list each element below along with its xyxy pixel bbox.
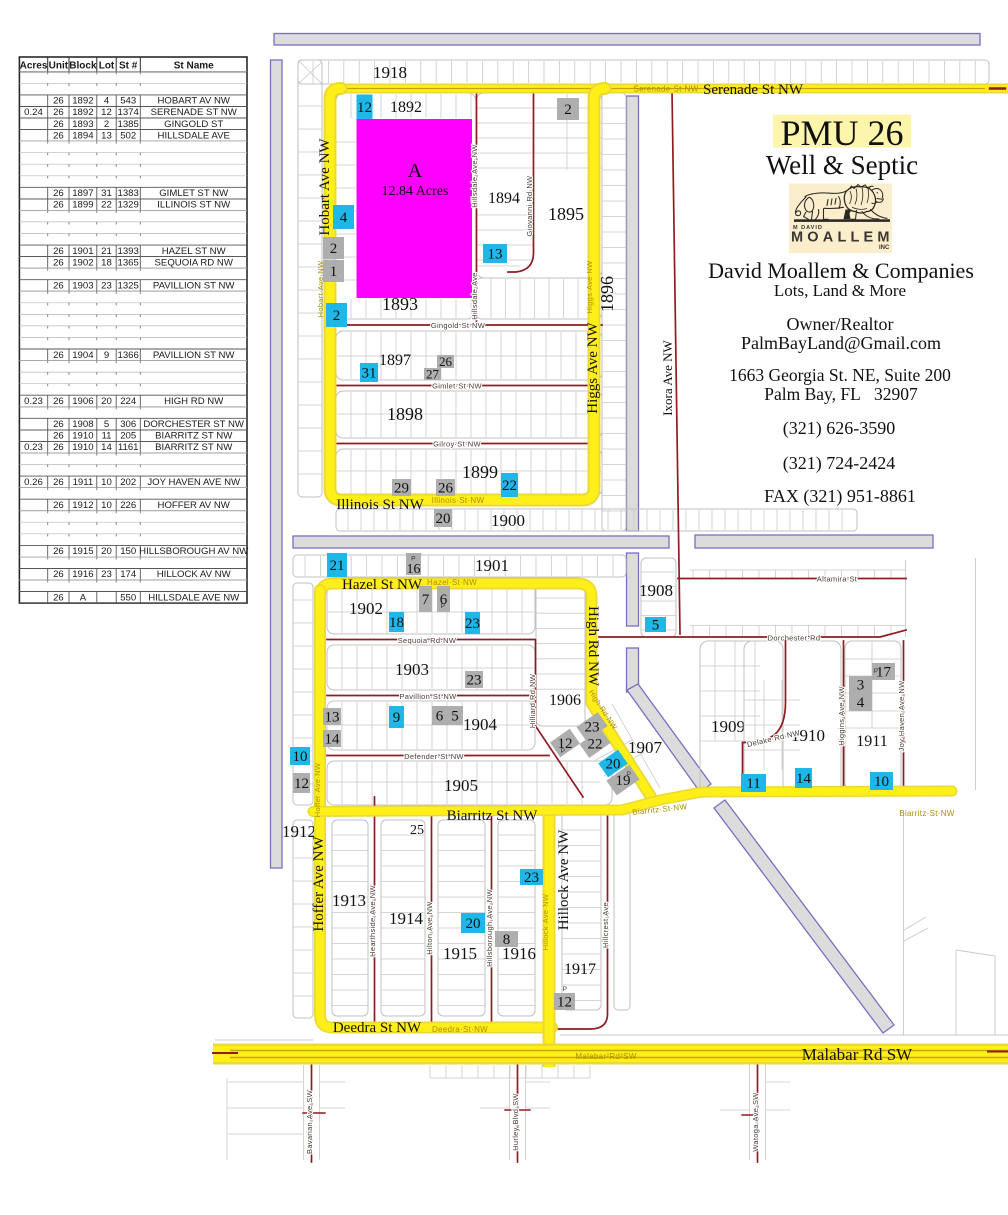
svg-text:P: P bbox=[561, 748, 566, 755]
svg-text:9: 9 bbox=[393, 710, 401, 726]
svg-text:1893: 1893 bbox=[72, 119, 93, 130]
svg-text:550: 550 bbox=[120, 592, 136, 603]
svg-text:1903: 1903 bbox=[395, 660, 429, 679]
svg-text:Hillsborough·Ave·NW: Hillsborough·Ave·NW bbox=[485, 889, 494, 967]
svg-text:205: 205 bbox=[120, 431, 136, 442]
svg-text:Altamira·St: Altamira·St bbox=[817, 575, 858, 584]
svg-text:Hillcrest·Ave: Hillcrest·Ave bbox=[601, 902, 610, 948]
svg-text:502: 502 bbox=[120, 130, 136, 141]
svg-text:Sequoia·Rd·NW: Sequoia·Rd·NW bbox=[398, 636, 457, 645]
svg-text:1: 1 bbox=[330, 264, 338, 280]
svg-text:SEQUOIA RD NW: SEQUOIA RD NW bbox=[155, 257, 234, 268]
svg-text:Biarritz St NW: Biarritz St NW bbox=[447, 808, 539, 824]
svg-text:Gingold·St·NW: Gingold·St·NW bbox=[431, 321, 486, 330]
svg-text:1895: 1895 bbox=[548, 204, 584, 224]
svg-text:14: 14 bbox=[325, 732, 341, 748]
svg-text:1899: 1899 bbox=[72, 200, 93, 211]
svg-text:HILLSDALE AVE NW: HILLSDALE AVE NW bbox=[148, 592, 240, 603]
svg-text:14: 14 bbox=[101, 442, 112, 453]
svg-text:10: 10 bbox=[101, 477, 112, 488]
svg-text:HILLOCK AV NW: HILLOCK AV NW bbox=[157, 569, 232, 580]
svg-text:1897: 1897 bbox=[72, 188, 93, 199]
svg-text:BIARRITZ ST NW: BIARRITZ ST NW bbox=[155, 431, 233, 442]
svg-text:SERENADE ST NW: SERENADE ST NW bbox=[151, 107, 238, 118]
svg-text:1385: 1385 bbox=[118, 119, 139, 130]
svg-text:26: 26 bbox=[53, 500, 64, 511]
svg-text:Acres: Acres bbox=[20, 60, 48, 71]
svg-text:PalmBayLand@Gmail.com: PalmBayLand@Gmail.com bbox=[741, 333, 941, 353]
svg-text:Deedra St NW: Deedra St NW bbox=[333, 1020, 422, 1036]
svg-text:27: 27 bbox=[426, 366, 440, 381]
svg-text:1901: 1901 bbox=[72, 246, 93, 257]
svg-text:Hobart Ave NW: Hobart Ave NW bbox=[317, 138, 333, 236]
svg-text:1912: 1912 bbox=[72, 500, 93, 511]
svg-text:5: 5 bbox=[652, 618, 660, 634]
svg-text:(321) 724-2424: (321) 724-2424 bbox=[783, 453, 895, 474]
svg-text:1898: 1898 bbox=[387, 404, 423, 424]
svg-text:26: 26 bbox=[53, 96, 64, 107]
svg-text:25: 25 bbox=[410, 823, 424, 838]
svg-text:Serenade·St·NW: Serenade·St·NW bbox=[633, 85, 698, 94]
svg-text:3: 3 bbox=[857, 678, 865, 694]
svg-text:A: A bbox=[408, 160, 423, 182]
svg-text:150: 150 bbox=[120, 546, 136, 557]
svg-text:Block: Block bbox=[69, 60, 97, 71]
svg-text:11: 11 bbox=[102, 431, 112, 442]
svg-text:23: 23 bbox=[101, 280, 112, 291]
svg-text:St #: St # bbox=[119, 60, 138, 71]
svg-text:1915: 1915 bbox=[72, 546, 93, 557]
svg-text:Ixora Ave NW: Ixora Ave NW bbox=[660, 339, 675, 415]
svg-text:26: 26 bbox=[53, 546, 64, 557]
svg-text:1906: 1906 bbox=[549, 692, 581, 709]
svg-text:2: 2 bbox=[104, 119, 109, 130]
svg-text:2: 2 bbox=[330, 241, 338, 257]
svg-text:Owner/Realtor: Owner/Realtor bbox=[787, 314, 894, 334]
svg-text:1325: 1325 bbox=[118, 280, 139, 291]
svg-text:HOFFER AV NW: HOFFER AV NW bbox=[158, 500, 231, 511]
svg-text:20: 20 bbox=[466, 916, 481, 932]
svg-text:1910: 1910 bbox=[72, 442, 93, 453]
svg-text:(321) 626-3590: (321) 626-3590 bbox=[783, 418, 895, 439]
svg-text:Illinois·St·NW: Illinois·St·NW bbox=[432, 496, 485, 505]
svg-text:HOBART AV NW: HOBART AV NW bbox=[157, 96, 230, 107]
svg-text:1892: 1892 bbox=[390, 99, 422, 116]
svg-text:22: 22 bbox=[101, 200, 112, 211]
svg-text:1894: 1894 bbox=[72, 130, 94, 141]
svg-text:26: 26 bbox=[53, 431, 64, 442]
svg-text:22: 22 bbox=[502, 478, 517, 494]
svg-text:1909: 1909 bbox=[711, 717, 745, 736]
svg-text:1908: 1908 bbox=[639, 581, 673, 600]
svg-text:13: 13 bbox=[101, 130, 112, 141]
svg-text:1901: 1901 bbox=[475, 556, 509, 575]
svg-text:26: 26 bbox=[53, 257, 64, 268]
svg-text:18: 18 bbox=[389, 615, 404, 631]
svg-text:1917: 1917 bbox=[564, 961, 596, 978]
svg-text:1899: 1899 bbox=[462, 462, 498, 482]
svg-text:1902: 1902 bbox=[349, 599, 383, 618]
svg-text:16: 16 bbox=[407, 562, 421, 577]
svg-text:PAVILLION ST NW: PAVILLION ST NW bbox=[153, 280, 236, 291]
svg-text:ILLINOIS ST NW: ILLINOIS ST NW bbox=[157, 200, 231, 211]
svg-text:23: 23 bbox=[465, 616, 480, 632]
svg-text:Dorchester·Rd: Dorchester·Rd bbox=[768, 634, 821, 643]
svg-text:4: 4 bbox=[857, 695, 865, 711]
svg-text:14: 14 bbox=[796, 771, 812, 787]
svg-text:PAVILLION ST NW: PAVILLION ST NW bbox=[153, 350, 236, 361]
svg-text:26: 26 bbox=[53, 200, 64, 211]
svg-text:1900: 1900 bbox=[491, 511, 525, 530]
svg-text:18: 18 bbox=[101, 257, 112, 268]
svg-text:Serenade St NW: Serenade St NW bbox=[703, 82, 804, 98]
svg-text:202: 202 bbox=[120, 477, 136, 488]
svg-text:Hilton·Ave·NW: Hilton·Ave·NW bbox=[425, 901, 434, 955]
svg-text:Malabar²Rd²SW: Malabar²Rd²SW bbox=[575, 1052, 636, 1061]
svg-text:1329: 1329 bbox=[118, 200, 139, 211]
svg-text:174: 174 bbox=[120, 569, 137, 580]
svg-text:Watoga·Ave·SW: Watoga·Ave·SW bbox=[751, 1092, 760, 1152]
svg-text:1916: 1916 bbox=[72, 569, 93, 580]
svg-text:Hilliard·Rd·NW: Hilliard·Rd·NW bbox=[528, 673, 537, 728]
svg-text:Hillock·Ave·NW: Hillock·Ave·NW bbox=[541, 893, 550, 950]
svg-text:Bavarian·Ave·SW: Bavarian·Ave·SW bbox=[305, 1089, 314, 1154]
svg-text:DORCHESTER ST NW: DORCHESTER ST NW bbox=[143, 419, 245, 430]
svg-text:0.23: 0.23 bbox=[24, 442, 43, 453]
svg-text:Hoffer·Ave·NW: Hoffer·Ave·NW bbox=[313, 762, 322, 817]
svg-text:BIARRITZ ST NW: BIARRITZ ST NW bbox=[155, 442, 233, 453]
svg-text:1904: 1904 bbox=[463, 715, 498, 734]
svg-text:26: 26 bbox=[53, 246, 64, 257]
svg-text:Well & Septic: Well & Septic bbox=[766, 150, 918, 180]
svg-text:1902: 1902 bbox=[72, 257, 93, 268]
svg-text:1894: 1894 bbox=[488, 190, 520, 207]
svg-text:5: 5 bbox=[451, 709, 459, 725]
svg-text:Higgins·Ave·NW: Higgins·Ave·NW bbox=[837, 686, 846, 746]
svg-text:David Moallem & Companies: David Moallem & Companies bbox=[708, 258, 974, 283]
svg-text:Malabar Rd SW: Malabar Rd SW bbox=[802, 1045, 913, 1064]
svg-text:26: 26 bbox=[53, 419, 64, 430]
svg-text:26: 26 bbox=[53, 107, 64, 118]
svg-text:1383: 1383 bbox=[118, 188, 139, 199]
svg-text:INC: INC bbox=[879, 245, 890, 251]
svg-text:Lot: Lot bbox=[99, 60, 115, 71]
svg-text:1911: 1911 bbox=[856, 733, 887, 750]
svg-text:Lots, Land & More: Lots, Land & More bbox=[774, 281, 906, 300]
svg-text:P: P bbox=[441, 603, 446, 610]
svg-text:Hurley·Blvd·SW: Hurley·Blvd·SW bbox=[511, 1093, 520, 1151]
svg-text:13: 13 bbox=[325, 710, 340, 726]
svg-text:Hazel St NW: Hazel St NW bbox=[342, 577, 423, 593]
svg-text:2: 2 bbox=[333, 308, 341, 324]
svg-text:23: 23 bbox=[467, 673, 482, 689]
svg-text:Higgs Ave NW: Higgs Ave NW bbox=[585, 321, 601, 413]
svg-text:Hillsdale·Ave: Hillsdale·Ave bbox=[470, 272, 479, 320]
svg-text:10: 10 bbox=[101, 500, 112, 511]
svg-text:1161: 1161 bbox=[118, 442, 139, 453]
svg-text:1365: 1365 bbox=[118, 257, 139, 268]
svg-text:1914: 1914 bbox=[389, 909, 424, 928]
svg-text:Hillock Ave NW: Hillock Ave NW bbox=[556, 829, 572, 930]
svg-text:PMU 26: PMU 26 bbox=[780, 113, 903, 153]
svg-text:1906: 1906 bbox=[72, 396, 93, 407]
svg-text:Illinois St NW: Illinois St NW bbox=[336, 497, 424, 513]
svg-text:P: P bbox=[627, 771, 632, 778]
svg-text:11: 11 bbox=[746, 776, 760, 792]
svg-text:26: 26 bbox=[53, 350, 64, 361]
svg-text:26: 26 bbox=[439, 354, 453, 369]
svg-text:26: 26 bbox=[53, 396, 64, 407]
svg-text:20: 20 bbox=[101, 396, 112, 407]
svg-text:10: 10 bbox=[293, 749, 308, 765]
svg-text:0.26: 0.26 bbox=[24, 477, 43, 488]
svg-text:21: 21 bbox=[330, 558, 345, 574]
svg-text:1374: 1374 bbox=[118, 107, 140, 118]
svg-text:26: 26 bbox=[53, 592, 64, 603]
svg-text:1393: 1393 bbox=[118, 246, 139, 257]
svg-text:23: 23 bbox=[101, 569, 112, 580]
svg-text:1908: 1908 bbox=[72, 419, 93, 430]
svg-text:543: 543 bbox=[120, 96, 136, 107]
svg-text:1918: 1918 bbox=[373, 63, 407, 82]
svg-text:Defender·St·NW: Defender·St·NW bbox=[404, 752, 464, 761]
svg-text:26: 26 bbox=[438, 481, 454, 497]
svg-text:224: 224 bbox=[120, 396, 137, 407]
svg-text:26: 26 bbox=[53, 477, 64, 488]
svg-text:9: 9 bbox=[104, 350, 109, 361]
svg-text:26: 26 bbox=[53, 130, 64, 141]
svg-text:12: 12 bbox=[557, 995, 572, 1011]
svg-text:12: 12 bbox=[294, 776, 309, 792]
svg-text:20: 20 bbox=[606, 757, 621, 773]
svg-text:JOY HAVEN AVE NW: JOY HAVEN AVE NW bbox=[147, 477, 241, 488]
svg-text:Hoffer Ave NW: Hoffer Ave NW bbox=[311, 836, 327, 932]
svg-text:26: 26 bbox=[53, 442, 64, 453]
svg-text:Joy·Haven·Ave·NW: Joy·Haven·Ave·NW bbox=[897, 680, 906, 752]
svg-text:5: 5 bbox=[104, 419, 109, 430]
svg-text:Palm Bay, FL 32907: Palm Bay, FL 32907 bbox=[764, 384, 918, 404]
svg-text:Unit: Unit bbox=[49, 60, 69, 71]
svg-text:1892: 1892 bbox=[72, 96, 93, 107]
svg-text:A: A bbox=[80, 592, 87, 603]
svg-text:1663 Georgia St. NE, Suite 200: 1663 Georgia St. NE, Suite 200 bbox=[729, 365, 951, 385]
svg-text:8: 8 bbox=[503, 932, 511, 948]
svg-text:Giovanni·Rd·NW: Giovanni·Rd·NW bbox=[525, 175, 534, 236]
svg-text:GIMLET ST NW: GIMLET ST NW bbox=[159, 188, 229, 199]
svg-text:Deedra·St·NW: Deedra·St·NW bbox=[432, 1025, 488, 1034]
svg-text:22: 22 bbox=[588, 737, 603, 753]
svg-text:12: 12 bbox=[357, 100, 372, 116]
svg-text:HAZEL ST NW: HAZEL ST NW bbox=[162, 246, 227, 257]
svg-text:1897: 1897 bbox=[379, 352, 411, 369]
svg-text:31: 31 bbox=[101, 188, 112, 199]
svg-text:St Name: St Name bbox=[174, 60, 214, 71]
svg-text:Pavillion·St·NW: Pavillion·St·NW bbox=[399, 692, 457, 701]
svg-text:1911: 1911 bbox=[73, 477, 94, 488]
svg-text:6: 6 bbox=[436, 709, 444, 725]
svg-text:GINGOLD ST: GINGOLD ST bbox=[164, 119, 223, 130]
svg-text:226: 226 bbox=[120, 500, 136, 511]
svg-text:31: 31 bbox=[362, 366, 377, 382]
svg-text:21: 21 bbox=[101, 246, 112, 257]
svg-text:1892: 1892 bbox=[72, 107, 93, 118]
svg-text:1366: 1366 bbox=[118, 350, 139, 361]
svg-text:1913: 1913 bbox=[332, 891, 366, 910]
svg-text:306: 306 bbox=[120, 419, 136, 430]
svg-text:26: 26 bbox=[53, 280, 64, 291]
svg-text:20: 20 bbox=[101, 546, 112, 557]
svg-text:26: 26 bbox=[53, 569, 64, 580]
svg-text:4: 4 bbox=[104, 96, 110, 107]
svg-text:7: 7 bbox=[422, 592, 430, 608]
svg-text:4: 4 bbox=[340, 210, 348, 226]
svg-text:12: 12 bbox=[101, 107, 112, 118]
svg-text:P: P bbox=[563, 986, 568, 993]
svg-text:1907: 1907 bbox=[628, 738, 663, 757]
svg-text:Hillsdale·Ave·NW: Hillsdale·Ave·NW bbox=[470, 144, 479, 208]
svg-text:23: 23 bbox=[524, 870, 539, 886]
svg-text:26: 26 bbox=[53, 119, 64, 130]
svg-text:FAX (321) 951-8861: FAX (321) 951-8861 bbox=[764, 486, 916, 507]
svg-text:1910: 1910 bbox=[72, 431, 93, 442]
svg-text:1905: 1905 bbox=[444, 776, 478, 795]
svg-text:0.23: 0.23 bbox=[24, 396, 43, 407]
svg-text:High Rd NW: High Rd NW bbox=[585, 606, 601, 687]
svg-text:Biarritz·St·NW: Biarritz·St·NW bbox=[899, 809, 954, 818]
svg-text:Hazel·St·NW: Hazel·St·NW bbox=[427, 578, 477, 587]
svg-text:Higgs·Ave·NW: Higgs·Ave·NW bbox=[585, 260, 594, 314]
svg-text:HILLSBOROUGH AV NW: HILLSBOROUGH AV NW bbox=[139, 546, 249, 557]
svg-text:26: 26 bbox=[53, 188, 64, 199]
svg-text:10: 10 bbox=[874, 774, 889, 790]
svg-text:0.24: 0.24 bbox=[24, 107, 43, 118]
svg-text:Gimlet·St·NW: Gimlet·St·NW bbox=[432, 382, 482, 391]
svg-text:1904: 1904 bbox=[72, 350, 94, 361]
svg-text:13: 13 bbox=[488, 247, 503, 263]
svg-text:P: P bbox=[874, 668, 879, 675]
svg-text:29: 29 bbox=[394, 481, 409, 497]
svg-text:1915: 1915 bbox=[443, 944, 477, 963]
svg-text:1903: 1903 bbox=[72, 280, 93, 291]
svg-text:HILLSDALE AVE: HILLSDALE AVE bbox=[158, 130, 230, 141]
svg-text:HIGH RD NW: HIGH RD NW bbox=[164, 396, 224, 407]
svg-text:20: 20 bbox=[436, 511, 451, 527]
svg-text:12.84 Acres: 12.84 Acres bbox=[382, 184, 449, 199]
svg-text:2: 2 bbox=[564, 102, 572, 118]
svg-text:P: P bbox=[411, 556, 416, 563]
svg-text:Hearthside·Ave·NW: Hearthside·Ave·NW bbox=[368, 885, 377, 957]
svg-text:Gilroy·St·NW: Gilroy·St·NW bbox=[433, 440, 481, 449]
